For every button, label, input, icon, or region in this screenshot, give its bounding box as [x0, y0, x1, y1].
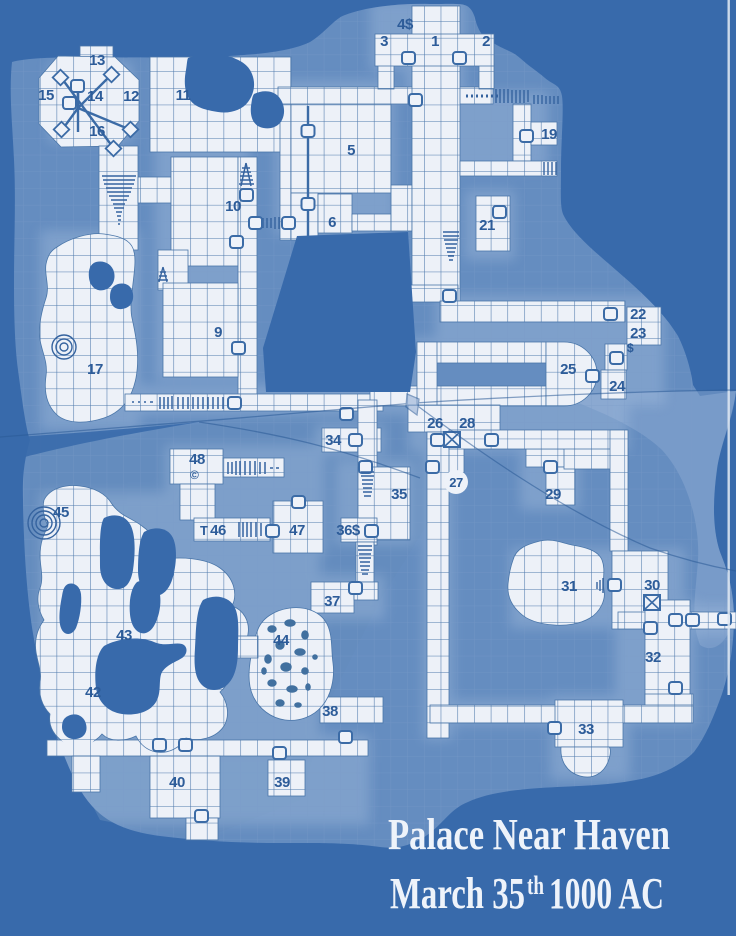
svg-text:46: 46: [210, 522, 226, 539]
svg-text:44: 44: [273, 632, 290, 649]
svg-text:Palace Near Haven: Palace Near Haven: [388, 810, 670, 859]
svg-text:2: 2: [482, 33, 490, 50]
svg-text:38: 38: [322, 703, 338, 720]
svg-text:13: 13: [89, 52, 105, 69]
svg-text:42: 42: [85, 684, 101, 701]
svg-text:6: 6: [328, 214, 336, 231]
svg-text:1: 1: [431, 33, 439, 50]
svg-text:29: 29: [545, 486, 561, 503]
svg-text:9: 9: [214, 324, 222, 341]
svg-text:47: 47: [289, 522, 305, 539]
svg-text:12: 12: [123, 88, 139, 105]
svg-text:15: 15: [38, 87, 54, 104]
svg-text:45: 45: [53, 504, 69, 521]
svg-text:40: 40: [169, 774, 185, 791]
svg-text:37: 37: [324, 593, 340, 610]
svg-text:23: 23: [630, 325, 646, 342]
svg-text:36$: 36$: [336, 522, 361, 539]
svg-text:30: 30: [644, 577, 660, 594]
svg-text:35: 35: [391, 486, 407, 503]
svg-text:14: 14: [87, 88, 104, 105]
svg-text:28: 28: [459, 415, 475, 432]
svg-text:21: 21: [479, 217, 495, 234]
svg-text:27: 27: [449, 475, 463, 490]
svg-text:5: 5: [347, 142, 355, 159]
svg-text:11: 11: [176, 87, 191, 104]
svg-text:22: 22: [630, 306, 646, 323]
svg-text:43: 43: [116, 627, 132, 644]
svg-text:39: 39: [274, 774, 290, 791]
svg-text:17: 17: [87, 361, 103, 378]
svg-text:4$: 4$: [397, 16, 414, 33]
svg-text:32: 32: [645, 649, 661, 666]
svg-text:16: 16: [89, 123, 105, 140]
svg-text:T: T: [200, 523, 208, 538]
svg-text:24: 24: [609, 378, 626, 395]
svg-text:25: 25: [560, 361, 576, 378]
svg-text:34: 34: [325, 432, 342, 449]
svg-text:48: 48: [189, 451, 205, 468]
svg-text:33: 33: [578, 721, 594, 738]
svg-text:$: $: [627, 341, 634, 355]
svg-text:31: 31: [561, 578, 577, 595]
svg-text:3: 3: [380, 33, 388, 50]
svg-text:26: 26: [427, 415, 443, 432]
svg-text:10: 10: [225, 198, 241, 215]
svg-text:19: 19: [541, 126, 557, 143]
svg-text:©: ©: [190, 468, 199, 482]
